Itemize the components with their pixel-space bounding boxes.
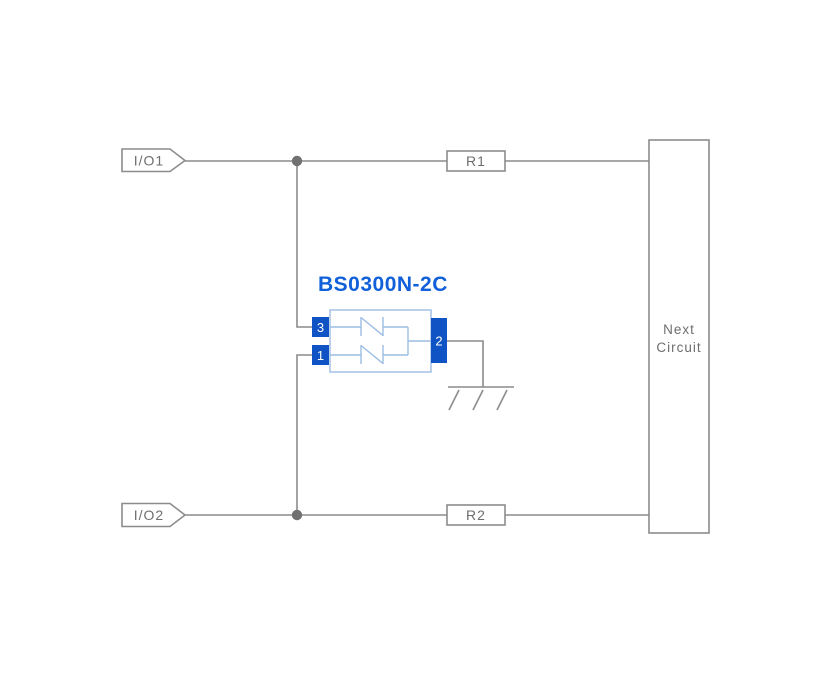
junction-dot-bottom bbox=[292, 510, 302, 520]
circuit-diagram: I/O1 I/O2 R1 R2 Next Circuit BS0300N-2C bbox=[0, 0, 832, 675]
r2-label: R2 bbox=[466, 507, 486, 523]
schematic-canvas: I/O1 I/O2 R1 R2 Next Circuit BS0300N-2C bbox=[0, 0, 832, 675]
component-title: BS0300N-2C bbox=[318, 273, 448, 296]
io2-label: I/O2 bbox=[134, 507, 164, 523]
next-circuit-block: Next Circuit bbox=[649, 140, 709, 533]
io2-connector: I/O2 bbox=[122, 504, 185, 527]
wire-pin2-to-ground bbox=[447, 341, 483, 387]
wire-branch-to-pin1 bbox=[297, 355, 312, 515]
r1-label: R1 bbox=[466, 153, 486, 169]
wire-branch-to-pin3 bbox=[297, 161, 312, 327]
io1-label: I/O1 bbox=[134, 153, 164, 169]
io1-connector: I/O1 bbox=[122, 149, 185, 172]
next-circuit-label-line2: Circuit bbox=[656, 340, 701, 355]
resistor-r1: R1 bbox=[447, 151, 505, 171]
pin2-label: 2 bbox=[435, 334, 442, 349]
ground-hatch-2 bbox=[473, 390, 483, 410]
next-circuit-label-line1: Next bbox=[663, 322, 695, 337]
ground-hatch-3 bbox=[497, 390, 507, 410]
resistor-r2: R2 bbox=[447, 505, 505, 525]
ground-hatch-1 bbox=[449, 390, 459, 410]
ground-icon bbox=[448, 387, 514, 410]
pin3-label: 3 bbox=[317, 320, 324, 335]
junction-dot-top bbox=[292, 156, 302, 166]
tvs-component: BS0300N-2C 3 1 2 bbox=[312, 273, 448, 372]
pin1-label: 1 bbox=[317, 348, 324, 363]
